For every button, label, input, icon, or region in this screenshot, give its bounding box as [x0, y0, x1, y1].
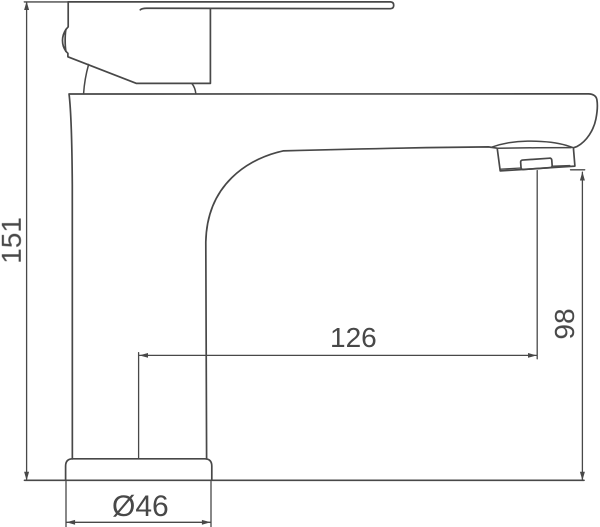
svg-text:98: 98 [549, 308, 580, 339]
svg-text:Ø46: Ø46 [112, 490, 169, 523]
svg-text:151: 151 [0, 217, 27, 264]
svg-text:126: 126 [330, 322, 377, 353]
